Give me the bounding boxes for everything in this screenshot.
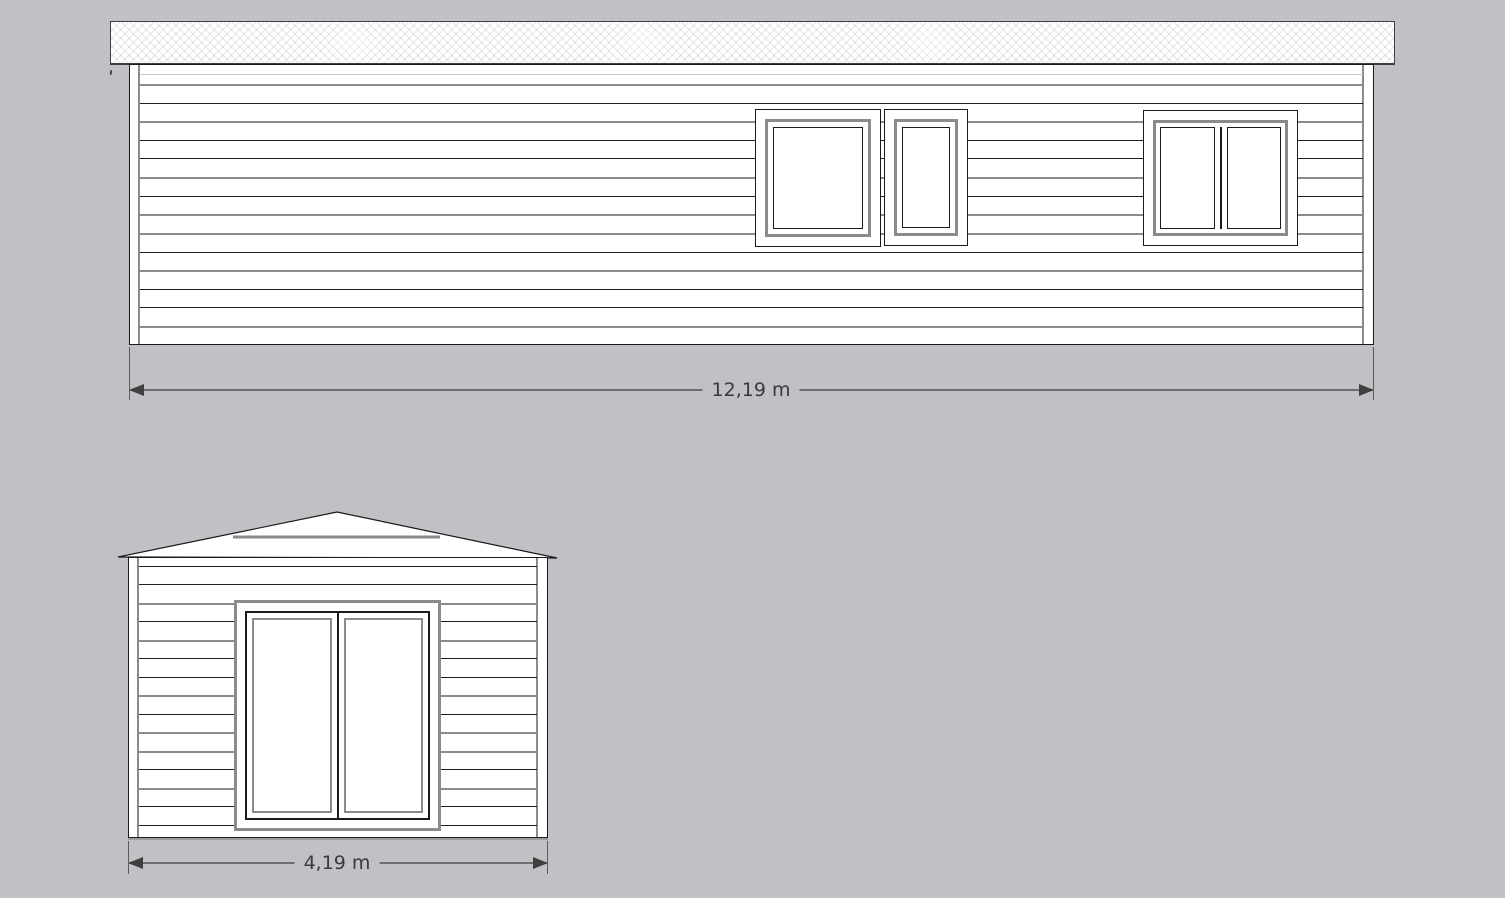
- gable-door-frame: [245, 611, 430, 820]
- side-window-large-sash: [773, 127, 863, 229]
- siding-line: [140, 307, 1363, 308]
- gable-door-mullion: [337, 613, 339, 818]
- gable-wall-ground-line: [128, 838, 548, 840]
- gable-width-label: 4,19 m: [295, 852, 380, 874]
- side-roof-fascia: [110, 21, 1395, 65]
- side-window-double: [1143, 110, 1298, 246]
- side-window-large: [755, 109, 881, 247]
- siding-line: [140, 252, 1363, 253]
- side-wall-left-trim: [138, 65, 140, 344]
- dimension-arrow-right: [1359, 384, 1374, 396]
- dimension-arrow-right: [533, 857, 548, 869]
- stray-mark: [110, 70, 113, 75]
- side-window-double-left-pane: [1160, 127, 1215, 229]
- side-window-narrow: [884, 109, 968, 246]
- side-wall-right-trim: [1362, 65, 1364, 344]
- siding-line: [140, 270, 1363, 272]
- siding-line: [140, 326, 1363, 328]
- side-window-double-right-pane: [1227, 127, 1282, 229]
- siding-line: [140, 289, 1363, 290]
- siding-line: [139, 584, 537, 585]
- side-window-double-mullion: [1220, 127, 1222, 229]
- gable-double-door: [234, 600, 441, 831]
- gable-wall-left-trim: [137, 558, 139, 837]
- gable-roof-outline: [118, 512, 557, 558]
- gable-door-left-leaf: [252, 618, 332, 813]
- siding-line: [140, 103, 1363, 104]
- gable-wall-right-trim: [536, 558, 538, 837]
- gable-roof: [110, 505, 565, 565]
- side-width-label: 12,19 m: [703, 379, 800, 401]
- siding-line: [140, 74, 1363, 75]
- side-window-double-sashes: [1160, 127, 1281, 229]
- siding-line: [140, 84, 1363, 86]
- dimension-arrow-left: [129, 384, 144, 396]
- gable-door-right-leaf: [344, 618, 424, 813]
- dimension-arrow-left: [128, 857, 143, 869]
- side-window-narrow-sash: [902, 127, 950, 228]
- siding-line: [139, 566, 537, 567]
- drawing-canvas: 12,19 m 4,19 m: [0, 0, 1505, 898]
